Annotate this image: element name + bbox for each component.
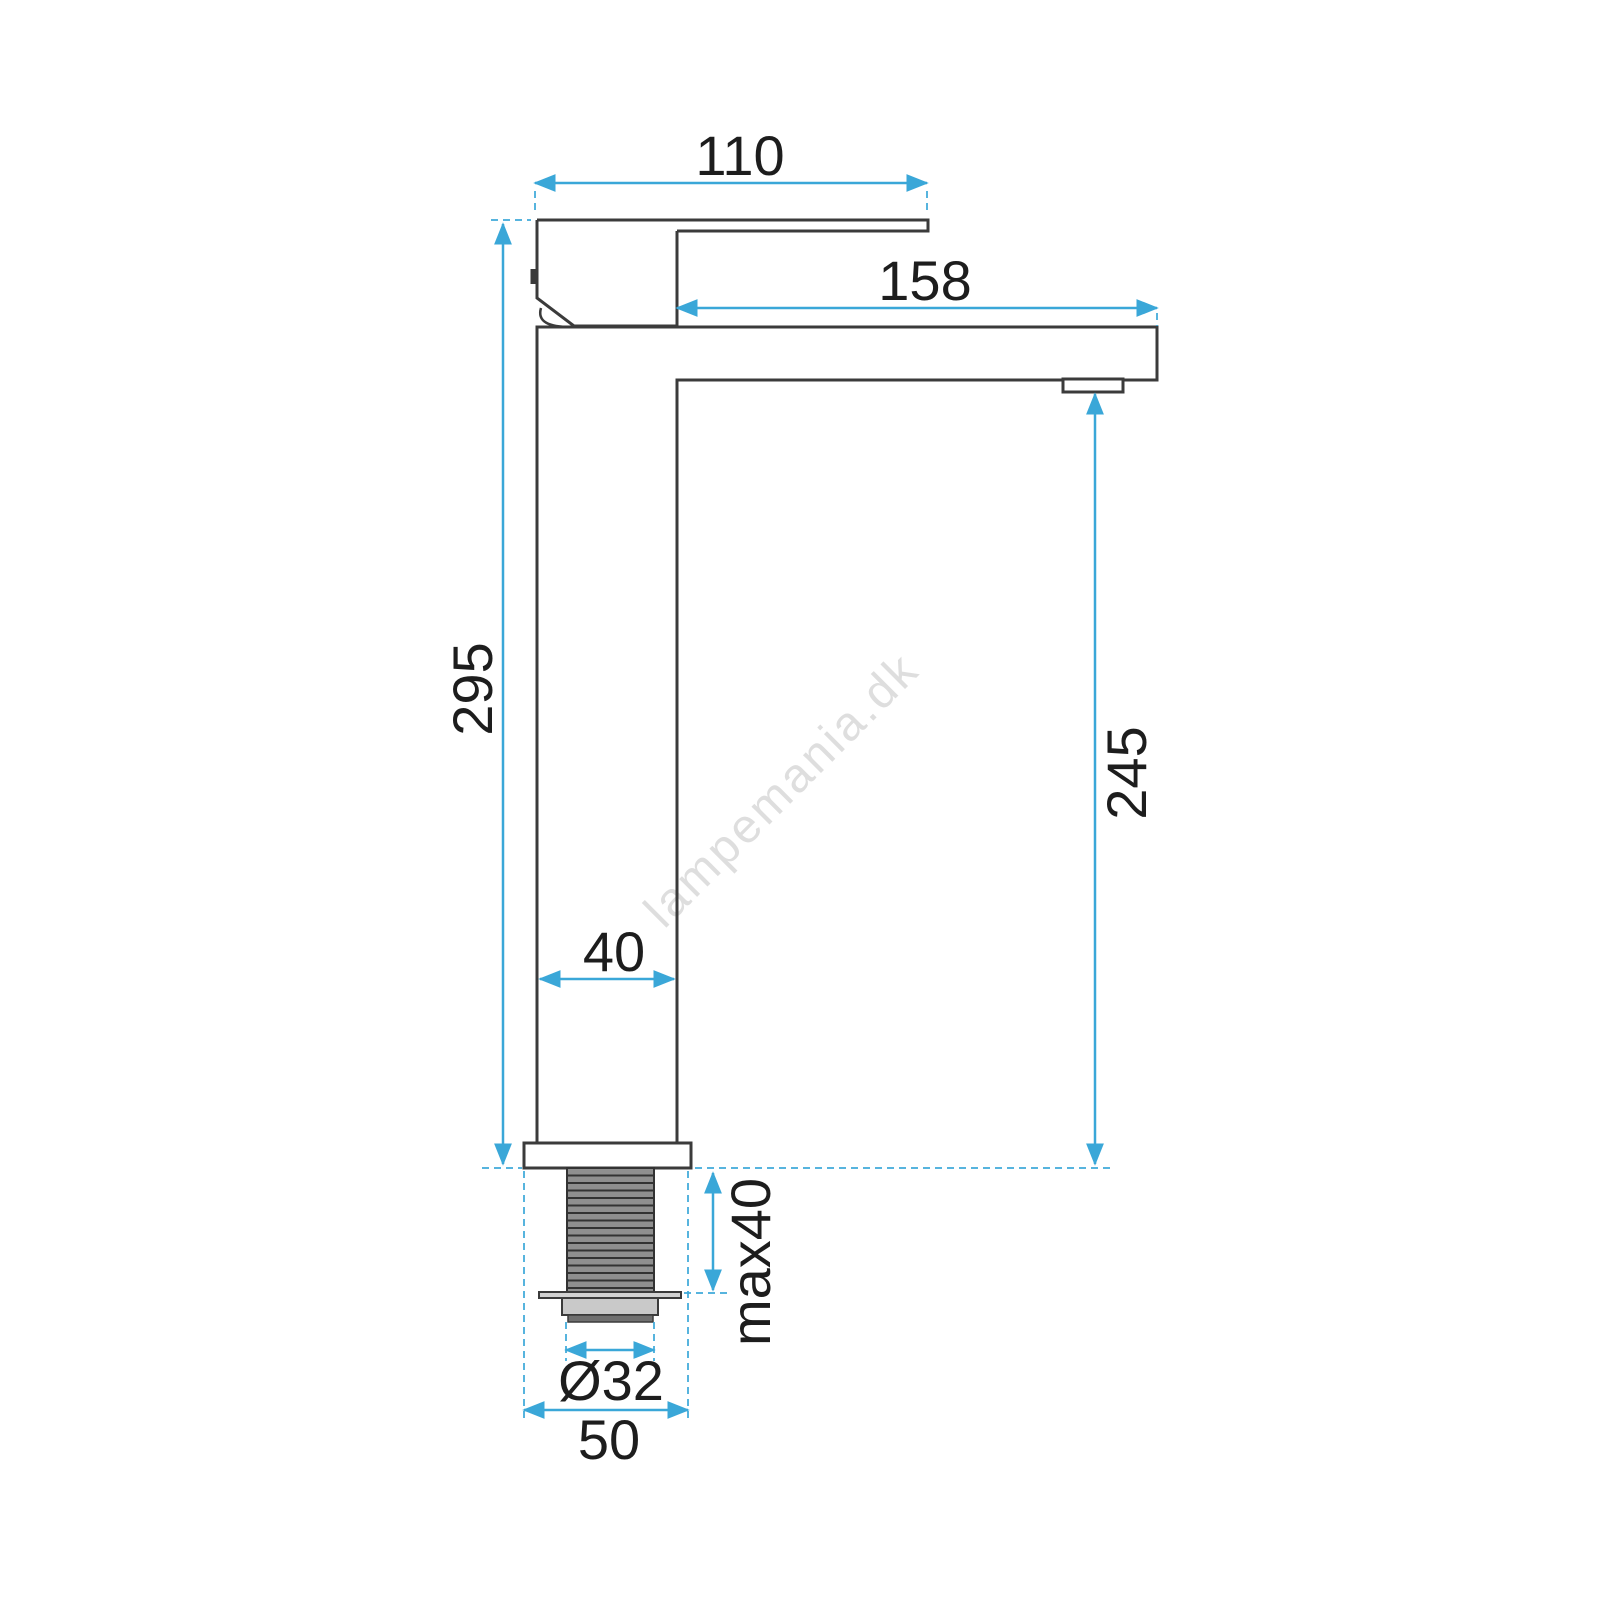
dim-label-body-width: 40 (583, 920, 645, 983)
dimension-thread-diameter: Ø32 (558, 1322, 664, 1412)
dimension-total-height: 295 (441, 220, 531, 1168)
handle-lever (537, 220, 928, 231)
dim-label-thread-diameter: Ø32 (558, 1349, 664, 1412)
dim-label-max-mount-thickness: max40 (719, 1178, 782, 1346)
dim-label-handle-length: 110 (695, 124, 784, 187)
mounting-hardware (539, 1168, 681, 1322)
faucet-dimension-diagram: lampemania.dk (0, 0, 1600, 1600)
dimension-handle-length: 110 (535, 124, 927, 214)
dim-label-total-height: 295 (441, 642, 504, 735)
dim-label-spout-height: 245 (1095, 726, 1158, 819)
dimension-max-mount-thickness: max40 (684, 1173, 782, 1346)
mounting-nut-lower (568, 1315, 653, 1322)
dim-label-spout-reach: 158 (878, 249, 971, 312)
watermark: lampemania.dk (634, 642, 929, 937)
aerator (1063, 379, 1123, 392)
dim-label-base-width: 50 (578, 1408, 640, 1471)
cartridge-neck (537, 220, 677, 326)
neck-tab (531, 269, 538, 284)
dimension-spout-reach: 158 (677, 249, 1157, 326)
dimension-body-width: 40 (540, 920, 674, 983)
lever-fillet-arc (540, 308, 574, 327)
mounting-nut (562, 1298, 658, 1315)
base-flange (524, 1143, 691, 1168)
technical-drawing-page: lampemania.dk (0, 0, 1600, 1600)
